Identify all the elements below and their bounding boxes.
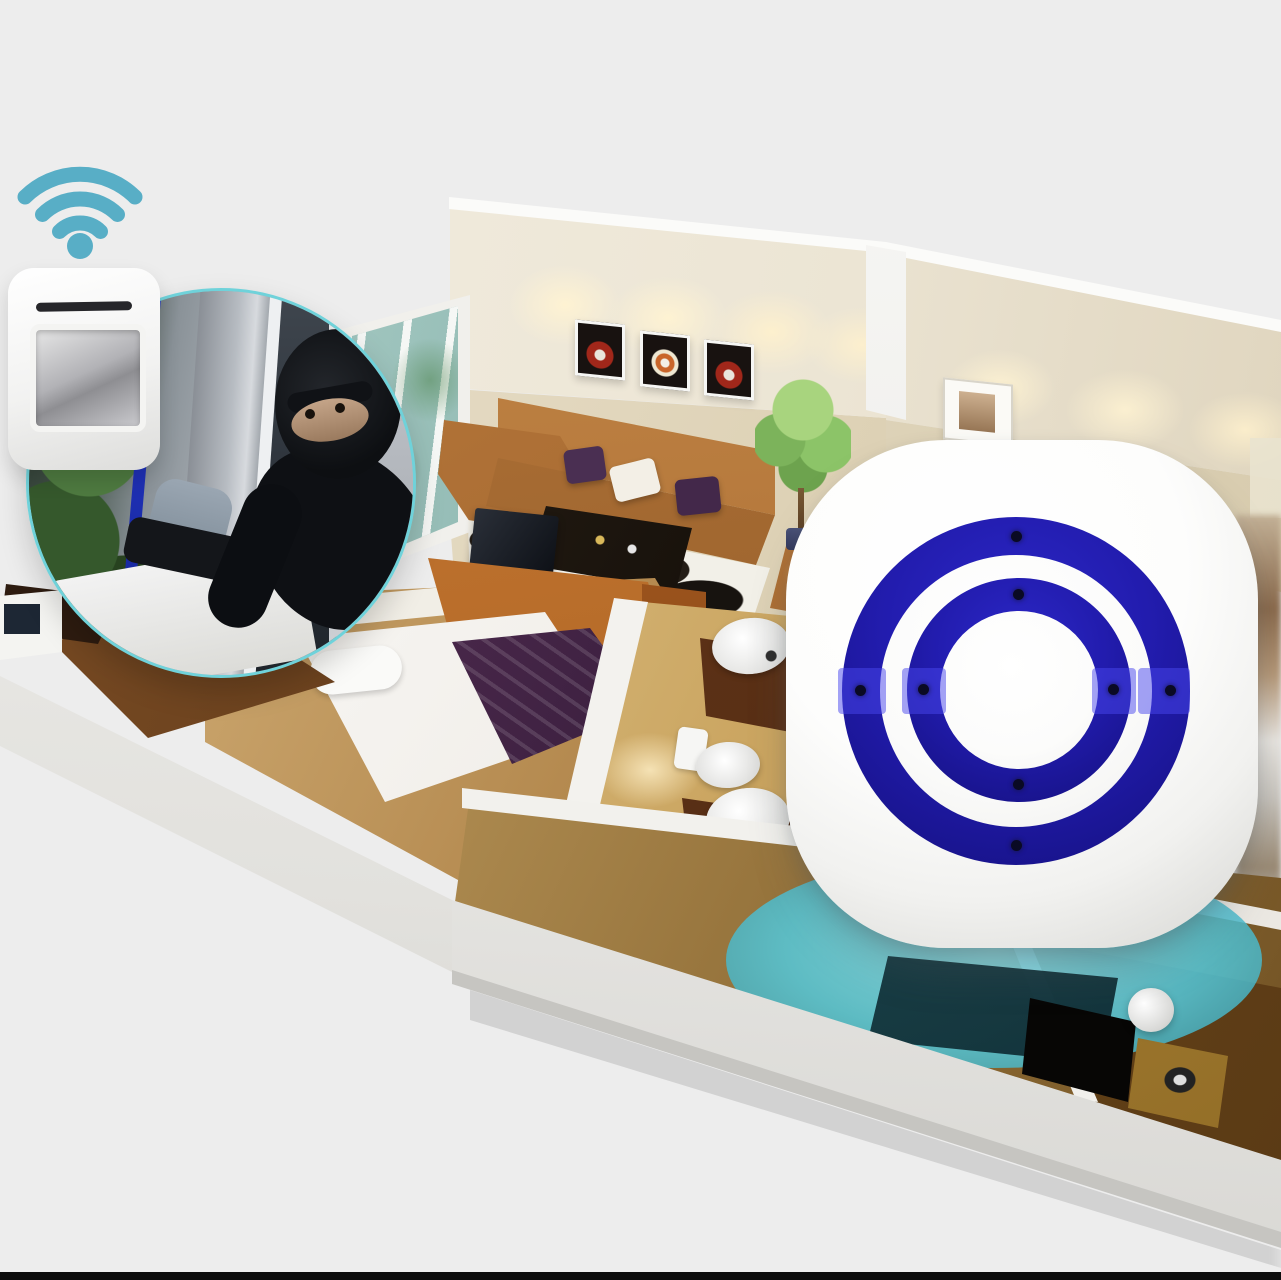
led-dot	[1165, 685, 1176, 696]
sofa-cushion-purple-1	[563, 445, 607, 484]
burglar-eye	[335, 403, 345, 413]
sphere-lamp	[1128, 988, 1174, 1032]
nightstand-speaker	[1158, 1062, 1202, 1098]
right-wall-picture	[943, 377, 1013, 446]
sensor-indicator-slot	[36, 301, 132, 312]
burglar-eye	[305, 409, 315, 419]
alarm-ring-inner-hole	[940, 611, 1098, 769]
potted-tree-foliage	[755, 372, 851, 500]
led-dot	[1011, 840, 1022, 851]
led-dot	[1013, 779, 1024, 790]
alarm-receiver	[786, 440, 1258, 948]
ring-highlight-segment	[1138, 668, 1190, 714]
right-wall-picture-photo	[959, 391, 995, 433]
wall-art-frame-2	[640, 330, 690, 391]
led-dot	[1013, 589, 1024, 600]
led-dot	[1011, 531, 1022, 542]
wall-art-frame-1	[575, 319, 625, 380]
led-dot	[918, 684, 929, 695]
wall-art-frame-3	[704, 339, 754, 400]
sensor-pir-window	[30, 324, 146, 432]
sofa-cushion-purple-2	[674, 476, 722, 516]
wifi-icon	[10, 140, 150, 265]
product-marketing-image	[0, 0, 1281, 1280]
pir-motion-sensor	[8, 268, 160, 470]
far-right-picture	[1250, 438, 1281, 518]
led-dot	[1108, 684, 1119, 695]
led-dot	[855, 685, 866, 696]
bottom-black-bar	[0, 1272, 1281, 1280]
